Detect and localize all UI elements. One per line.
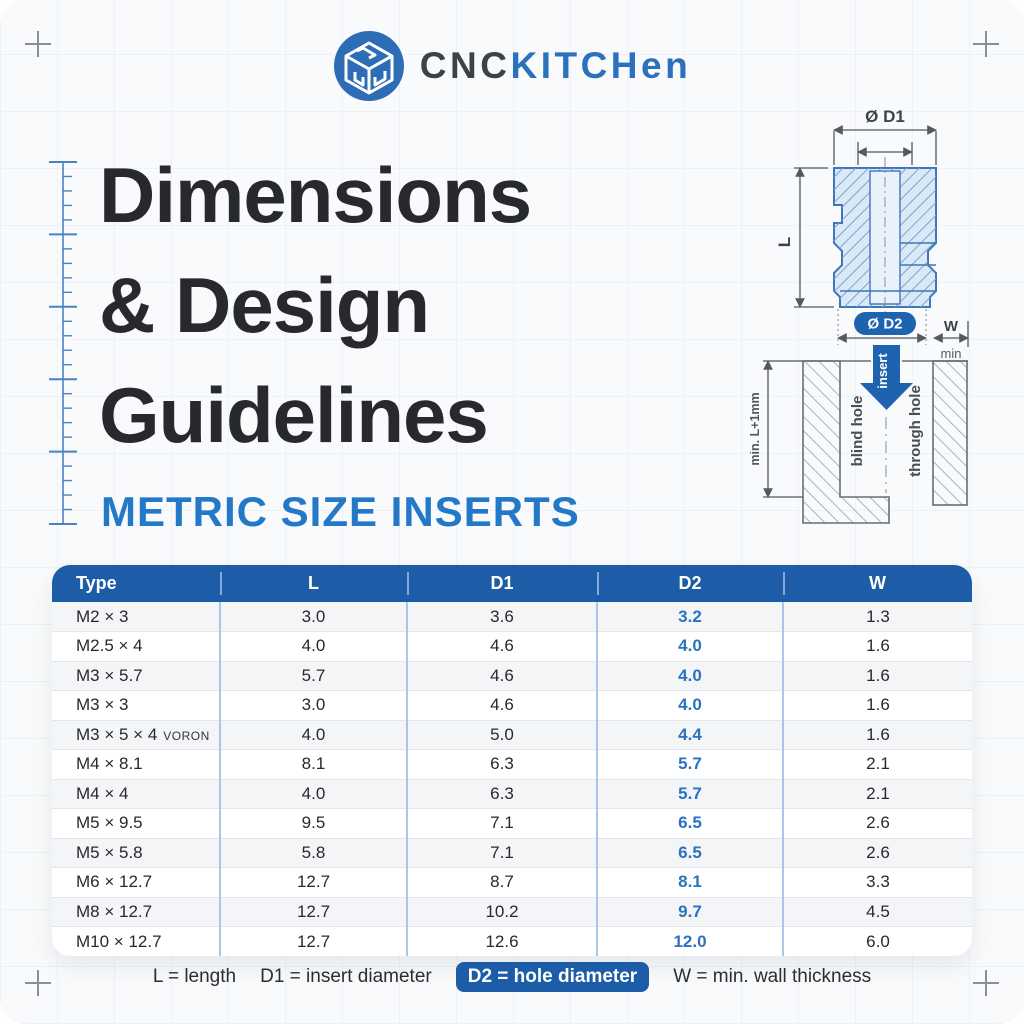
legend-item-l: L = length <box>153 966 236 988</box>
infographic-canvas: CNCKITCHen Dimensions & Design Guideline… <box>0 0 1024 1024</box>
ruler-icon <box>46 158 82 530</box>
title-line-1: Dimensions <box>99 140 531 250</box>
page-subtitle: METRIC SIZE INSERTS <box>101 488 580 536</box>
table-row: M5 × 9.59.57.16.52.6 <box>52 809 972 839</box>
cell-d2: 8.1 <box>597 868 783 898</box>
cell-l: 3.0 <box>220 602 407 632</box>
cell-type: M3 × 3 <box>52 691 220 721</box>
cell-d1: 7.1 <box>407 809 597 839</box>
legend-item-d2-highlight: D2 = hole diameter <box>456 962 649 992</box>
cell-w: 1.6 <box>783 632 972 662</box>
cell-l: 3.0 <box>220 691 407 721</box>
cell-w: 1.6 <box>783 661 972 691</box>
cell-d2: 5.7 <box>597 779 783 809</box>
cell-l: 12.7 <box>220 927 407 957</box>
cnc-cube-icon <box>333 30 405 102</box>
cell-w: 6.0 <box>783 927 972 957</box>
cell-type: M5 × 5.8 <box>52 838 220 868</box>
table-row: M4 × 44.06.35.72.1 <box>52 779 972 809</box>
cell-type: M2 × 3 <box>52 602 220 632</box>
dimensions-table: Type L D1 D2 W M2 × 33.03.63.21.3M2.5 × … <box>52 565 972 956</box>
cell-d2: 4.0 <box>597 661 783 691</box>
cell-d2: 4.0 <box>597 632 783 662</box>
column-header-l: L <box>220 565 407 602</box>
title-line-3: Guidelines <box>99 360 531 470</box>
cell-w: 2.1 <box>783 779 972 809</box>
cell-d1: 5.0 <box>407 720 597 750</box>
legend: L = length D1 = insert diameter D2 = hol… <box>0 962 1024 992</box>
cell-d2: 4.0 <box>597 691 783 721</box>
cell-w: 1.3 <box>783 602 972 632</box>
cell-type: M4 × 8.1 <box>52 750 220 780</box>
legend-item-d1: D1 = insert diameter <box>260 966 432 988</box>
cell-d1: 3.6 <box>407 602 597 632</box>
label-w-min: min <box>941 346 962 361</box>
cell-l: 12.7 <box>220 868 407 898</box>
cell-type: M8 × 12.7 <box>52 897 220 927</box>
legend-item-w: W = min. wall thickness <box>673 966 871 988</box>
cell-d1: 12.6 <box>407 927 597 957</box>
table-header-row: Type L D1 D2 W <box>52 565 972 602</box>
cell-l: 4.0 <box>220 720 407 750</box>
label-through-hole: through hole <box>907 385 924 477</box>
column-header-w: W <box>783 565 972 602</box>
cell-type: M6 × 12.7 <box>52 868 220 898</box>
table-row: M2.5 × 44.04.64.01.6 <box>52 632 972 662</box>
label-d2: Ø D2 <box>867 316 902 333</box>
cell-type: M4 × 4 <box>52 779 220 809</box>
label-w: W <box>944 318 959 335</box>
table-row: M3 × 5.75.74.64.01.6 <box>52 661 972 691</box>
column-header-d2: D2 <box>597 565 783 602</box>
column-header-d1: D1 <box>407 565 597 602</box>
cell-type: M3 × 5.7 <box>52 661 220 691</box>
brand-logo: CNCKITCHen <box>0 30 1024 102</box>
insert-technical-diagram: Ø D1 L Ø D2 <box>750 95 1020 530</box>
table-row: M4 × 8.18.16.35.72.1 <box>52 750 972 780</box>
table-row: M8 × 12.712.710.29.74.5 <box>52 897 972 927</box>
cell-l: 4.0 <box>220 632 407 662</box>
cell-d1: 6.3 <box>407 779 597 809</box>
cell-w: 1.6 <box>783 720 972 750</box>
table-row: M5 × 5.85.87.16.52.6 <box>52 838 972 868</box>
cell-d2: 3.2 <box>597 602 783 632</box>
cell-d1: 7.1 <box>407 838 597 868</box>
table-row: M3 × 33.04.64.01.6 <box>52 691 972 721</box>
brand-name-primary: CNC <box>420 45 511 86</box>
through-hole-wall <box>933 361 967 505</box>
cell-d2: 4.4 <box>597 720 783 750</box>
column-header-type: Type <box>52 565 220 602</box>
cell-d1: 4.6 <box>407 661 597 691</box>
table-row: M3 × 5 × 4VORON4.05.04.41.6 <box>52 720 972 750</box>
cell-d1: 6.3 <box>407 750 597 780</box>
cell-w: 1.6 <box>783 691 972 721</box>
cell-w: 2.6 <box>783 838 972 868</box>
label-blind-hole: blind hole <box>849 396 866 467</box>
cell-d2: 5.7 <box>597 750 783 780</box>
brand-name-secondary: KITCHen <box>510 45 691 86</box>
cell-l: 12.7 <box>220 897 407 927</box>
cell-l: 9.5 <box>220 809 407 839</box>
cell-d2: 6.5 <box>597 809 783 839</box>
cell-d1: 4.6 <box>407 691 597 721</box>
cell-w: 3.3 <box>783 868 972 898</box>
cell-l: 5.7 <box>220 661 407 691</box>
cell-d1: 4.6 <box>407 632 597 662</box>
title-line-2: & Design <box>99 250 531 360</box>
cell-d1: 10.2 <box>407 897 597 927</box>
table-row: M6 × 12.712.78.78.13.3 <box>52 868 972 898</box>
cell-d2: 9.7 <box>597 897 783 927</box>
cell-type: M10 × 12.7 <box>52 927 220 957</box>
dimensions-table-card: Type L D1 D2 W M2 × 33.03.63.21.3M2.5 × … <box>52 565 972 956</box>
table-row: M10 × 12.712.712.612.06.0 <box>52 927 972 957</box>
cell-l: 8.1 <box>220 750 407 780</box>
label-d1: Ø D1 <box>865 107 905 126</box>
type-suffix: VORON <box>163 729 210 743</box>
cell-w: 2.1 <box>783 750 972 780</box>
cell-d2: 12.0 <box>597 927 783 957</box>
cell-type: M3 × 5 × 4VORON <box>52 720 220 750</box>
cell-d1: 8.7 <box>407 868 597 898</box>
table-row: M2 × 33.03.63.21.3 <box>52 602 972 632</box>
label-min-depth: min. L+1mm <box>750 392 762 465</box>
label-l: L <box>775 237 794 247</box>
brand-name: CNCKITCHen <box>420 45 691 87</box>
table-body: M2 × 33.03.63.21.3M2.5 × 44.04.64.01.6M3… <box>52 602 972 956</box>
cell-l: 4.0 <box>220 779 407 809</box>
label-insert: insert <box>875 353 890 389</box>
page-title: Dimensions & Design Guidelines <box>99 140 531 470</box>
cell-l: 5.8 <box>220 838 407 868</box>
cell-type: M5 × 9.5 <box>52 809 220 839</box>
cell-d2: 6.5 <box>597 838 783 868</box>
cell-w: 2.6 <box>783 809 972 839</box>
cell-w: 4.5 <box>783 897 972 927</box>
cell-type: M2.5 × 4 <box>52 632 220 662</box>
